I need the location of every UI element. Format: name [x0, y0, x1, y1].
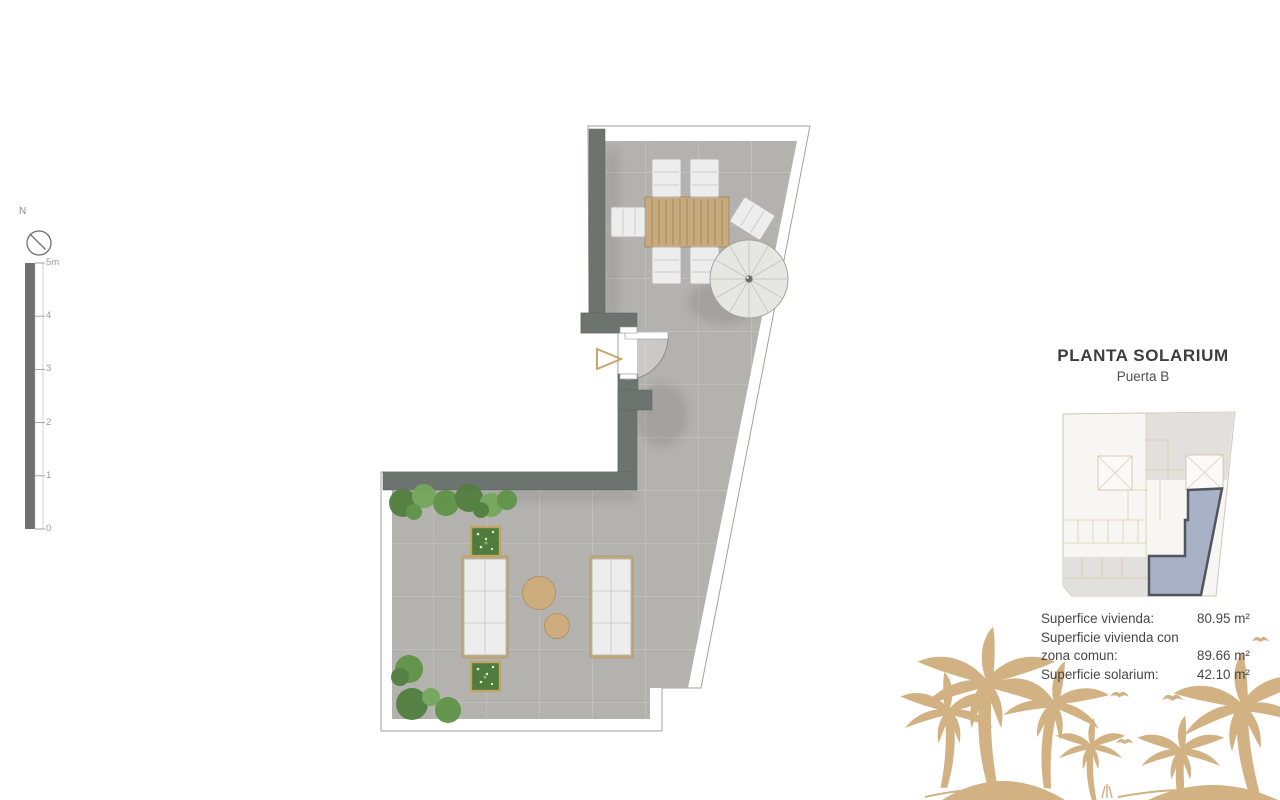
key-plan-shaft [1098, 456, 1132, 490]
key-plan-shaft [1186, 455, 1223, 490]
scale-label-2: 2 [46, 417, 51, 428]
surface-areas: Superfice vivienda: 80.95 m² Superficie … [1041, 611, 1255, 686]
title-block: PLANTA SOLARIUM Puerta B [1043, 346, 1243, 384]
surface-label: zona comun: [1041, 648, 1118, 663]
surface-value: 80.95 m² [1197, 611, 1250, 626]
surface-value: 42.10 m² [1197, 667, 1250, 682]
surface-label: Superfice vivienda: [1041, 611, 1154, 626]
scale-label-0: 0 [46, 523, 51, 534]
plan-title: PLANTA SOLARIUM [1043, 346, 1243, 366]
dining-chair [690, 159, 719, 197]
surface-row: Superficie solarium: 42.10 m² [1041, 667, 1255, 686]
sofa [462, 556, 508, 658]
key-plan [1063, 412, 1235, 596]
surface-row: Superficie vivienda con [1041, 630, 1255, 649]
surface-row: zona comun: 89.66 m² [1041, 648, 1255, 667]
dining-chair [611, 207, 645, 237]
plan-subtitle: Puerta B [1043, 369, 1243, 384]
surface-value: 89.66 m² [1197, 648, 1250, 663]
north-compass-icon [27, 231, 51, 255]
scale-label-4: 4 [46, 310, 51, 321]
sofa [590, 556, 633, 658]
scale-label-3: 3 [46, 363, 51, 374]
surface-row: Superfice vivienda: 80.95 m² [1041, 611, 1255, 630]
scale-label-5m: 5m [46, 257, 59, 268]
parasol-umbrella [710, 240, 788, 318]
dining-chair [652, 247, 681, 284]
surface-label: Superficie solarium: [1041, 667, 1159, 682]
surface-label: Superficie vivienda con [1041, 630, 1179, 645]
coffee-table [523, 577, 556, 610]
entry-arrow-icon [597, 349, 621, 369]
scale-bar [25, 263, 45, 529]
scale-label-1: 1 [46, 470, 51, 481]
planter [471, 527, 500, 556]
coffee-table [545, 614, 570, 639]
north-label: N [19, 206, 26, 217]
dining-chair [652, 159, 681, 197]
dining-table [645, 197, 729, 247]
floor-plan-page: N 5m 4 3 2 1 0 PLANTA SOLARIUM Puerta B … [0, 0, 1280, 800]
planter [471, 662, 500, 691]
